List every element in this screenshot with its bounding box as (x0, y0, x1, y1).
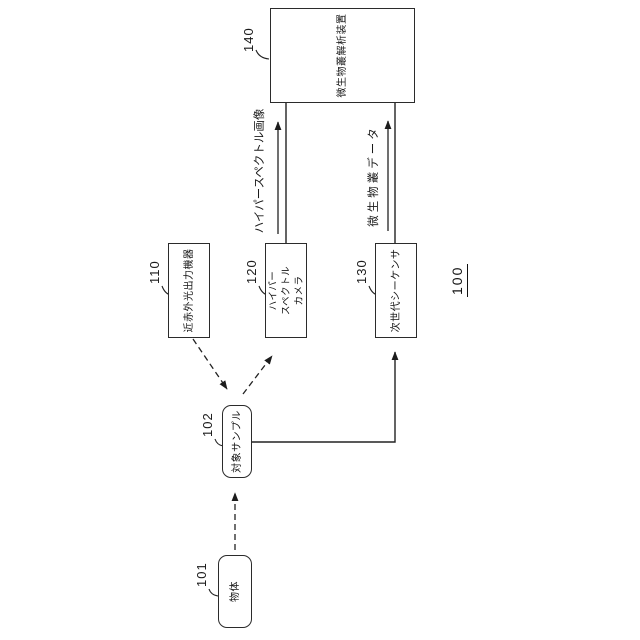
flow-label-hyperspectral-image: ハイパースペクトル画像 (251, 104, 267, 238)
ref-label-140: 140 (241, 27, 256, 52)
ref-label-101: 101 (194, 562, 209, 587)
node-120-hyperspectral-camera: ハイパー スペクトル カメラ (265, 243, 307, 338)
figure-number: 100 (449, 264, 468, 297)
node-140-microbiome-analyzer: 微生物叢解析装置 (270, 8, 415, 103)
node-130-next-gen-sequencer: 次世代シーケンサ (375, 243, 417, 338)
ref-label-110: 110 (147, 260, 162, 284)
node-101-label: 物体 (229, 581, 242, 602)
flow-label-microbiome-data: 微生物叢データ (365, 114, 381, 238)
dashed-arrow-nir-to-sample (193, 339, 227, 389)
node-120-label: ハイパー スペクトル カメラ (267, 266, 306, 315)
dashed-arrow-sample-to-camera (243, 356, 272, 394)
figure-canvas: 物体 対象サンプル 近赤外光出力機器 ハイパー スペクトル カメラ 次世代シーケ… (0, 0, 640, 640)
node-130-label: 次世代シーケンサ (390, 249, 403, 333)
node-140-label: 微生物叢解析装置 (336, 14, 349, 98)
node-110-nir-output-device: 近赤外光出力機器 (168, 243, 210, 338)
ref-label-130: 130 (354, 259, 369, 284)
node-110-label: 近赤外光出力機器 (183, 249, 196, 333)
node-101-object: 物体 (218, 555, 252, 628)
node-102-sample: 対象サンプル (222, 405, 252, 478)
node-102-label: 対象サンプル (231, 410, 244, 473)
ref-label-120: 120 (244, 259, 259, 284)
leader-101 (209, 589, 218, 596)
ref-label-102: 102 (200, 412, 215, 437)
arrow-sample-to-sequencer (252, 352, 395, 442)
patent-figure-sheet: 物体 対象サンプル 近赤外光出力機器 ハイパー スペクトル カメラ 次世代シーケ… (0, 0, 640, 640)
leader-140 (256, 50, 269, 59)
